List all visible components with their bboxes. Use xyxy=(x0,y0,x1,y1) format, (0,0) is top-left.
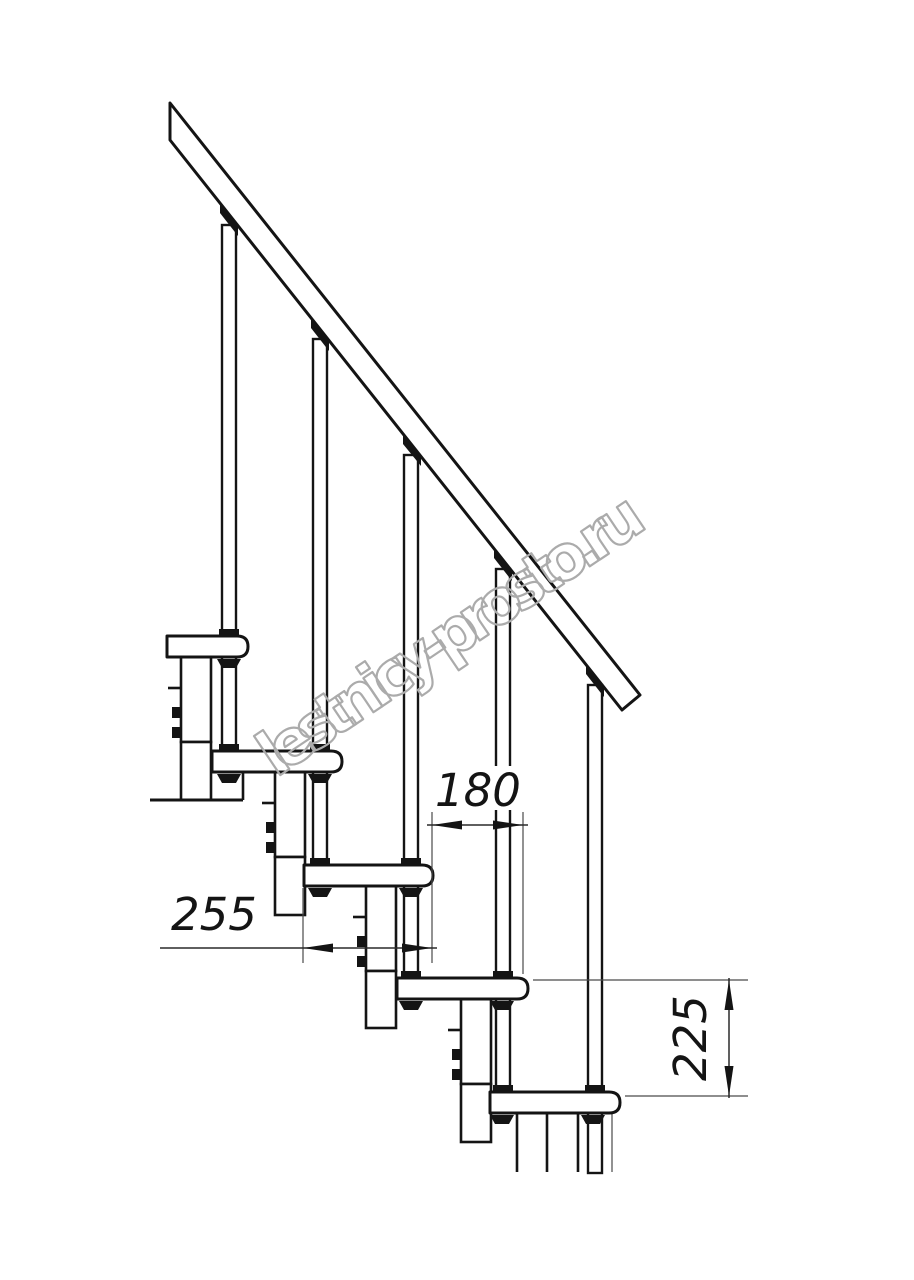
clamp-band-icon xyxy=(493,1085,513,1093)
clamp-band-icon xyxy=(401,971,421,979)
module-4-sleeve xyxy=(461,1084,491,1142)
module-3-column xyxy=(366,886,396,971)
module-3-sleeve xyxy=(366,971,396,1028)
baluster-2 xyxy=(313,339,327,866)
drawing-svg: 180 255 225 lestnicy-prosto.ru xyxy=(0,0,914,1280)
dimension-tread-depth-label: 255 xyxy=(171,888,257,941)
bolt-icon xyxy=(266,822,276,833)
bolt-icon xyxy=(172,707,182,718)
module-2-sleeve xyxy=(275,857,305,915)
baluster-3 xyxy=(404,455,418,979)
staircase-technical-drawing: 180 255 225 lestnicy-prosto.ru xyxy=(0,0,914,1280)
module-1-column xyxy=(181,657,211,742)
bolt-icon xyxy=(452,1049,462,1060)
clamp-band-icon xyxy=(219,629,239,637)
clamp-band-icon xyxy=(219,744,239,752)
baluster-1 xyxy=(222,225,236,753)
tread-5 xyxy=(490,1092,620,1113)
module-1-sleeve xyxy=(181,742,211,800)
clamp-band-icon xyxy=(493,971,513,979)
tread-1 xyxy=(167,636,248,657)
bolt-icon xyxy=(357,936,367,947)
clamp-band-icon xyxy=(310,858,330,866)
tread-4 xyxy=(397,978,528,999)
bolt-icon xyxy=(172,727,182,738)
clamp-band-icon xyxy=(585,1085,605,1093)
dimension-rise-label: 225 xyxy=(664,995,717,1081)
clamp-band-icon xyxy=(401,858,421,866)
baluster-4 xyxy=(496,569,510,1093)
dimension-going-label: 180 xyxy=(435,764,521,817)
tread-3 xyxy=(304,865,433,886)
bolt-icon xyxy=(357,956,367,967)
bolt-icon xyxy=(452,1069,462,1080)
bolt-icon xyxy=(266,842,276,853)
module-4-column xyxy=(461,999,491,1084)
